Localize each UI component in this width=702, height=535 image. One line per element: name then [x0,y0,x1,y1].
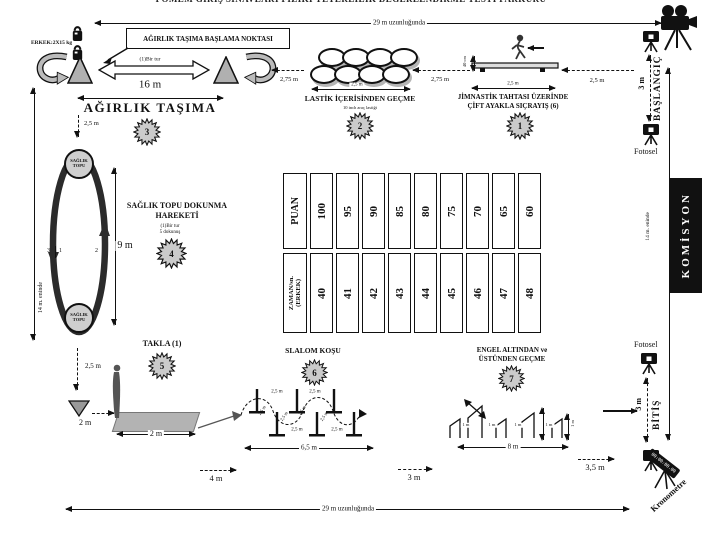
score-value: 100 [316,203,328,220]
cone-down-icon [68,400,90,418]
medicine-ball-note-1: (1)Bir tur [160,224,179,229]
finish-label: BİTİŞ [653,390,663,440]
weight-carry-arrow [78,98,223,99]
one-lap-label: (1)Bir tur [138,57,163,63]
slalom-gap-label: 2,5 m [307,390,322,395]
board-start-gap-label: 2,5 m [588,78,607,85]
score-value: 85 [394,206,406,217]
gap-4m-label: 4 m [210,474,223,483]
hurdles-icon [448,392,580,446]
station-5-number: 5 [148,352,176,380]
finish-zone-line [647,378,648,442]
medicine-ball-top: SAĞLIK TOPU [64,149,94,179]
course-diagram: POMEM GİRİŞ SINAVLARI FİZİKİ YETERLİLİK … [0,0,702,535]
tires-title: LASTİK İÇERİSİNDEN GEÇME [305,95,415,103]
score-value: 75 [446,206,458,217]
weights-label: ERKEK:2X15 kg [31,41,72,47]
start-point-box: AĞIRLIK TAŞIMA BAŞLAMA NOKTASI [126,28,290,49]
station-5-badge: 5 [148,352,176,380]
time-value: 47 [498,288,510,299]
photocell-icon [639,353,659,380]
commission-box: KOMİSYON [670,178,702,293]
time-header-2: (ERKEK) [295,279,302,307]
gap-35m-label: 3,5 m [585,463,604,472]
time-value: 44 [420,288,432,299]
score-header: PUAN [290,197,301,225]
offset-line-3 [78,115,79,137]
station-2-number: 2 [346,112,374,140]
time-cell: 44 [414,253,437,333]
course-width-left-label: 14 m. eninde [38,282,44,313]
time-header-1: ZAMAN/sn. [288,276,295,310]
time-row: ZAMAN/sn. (ERKEK) 40 41 42 43 44 45 46 4… [283,253,541,333]
time-cell: 40 [310,253,333,333]
top-length-label: 29 m uzunluğunda [371,20,427,27]
hurdle-gap-label: 1 m [487,423,498,428]
hurdle-gap-label: 1 m [461,423,472,428]
time-value: 46 [472,288,484,299]
slalom-total-label: 6,5 m [299,445,319,452]
lane-tick [55,246,56,258]
station-7-badge: 7 [498,365,525,392]
page-title: POMEM GİRİŞ SINAVLARI FİZİKİ YETERLİLİK … [156,0,547,4]
board-height-arrow [474,56,475,71]
course-width-right-label: 14 m. eninde [646,212,652,241]
tire-width-label: 2,5 m [349,83,364,88]
score-value: 95 [342,206,354,217]
tire-gap-right-arrow [413,70,470,71]
board-height-label: 40 cm [463,56,468,67]
score-cell: 75 [440,173,463,249]
oval-length-label: 9 m [115,241,134,251]
start-zone-line [650,55,651,121]
gap-3m-label: 3 m [408,473,421,482]
time-cell: 47 [492,253,515,333]
ball-label: SAĞLIK TOPU [67,313,91,323]
score-header-cell: PUAN [283,173,307,249]
tire-gap-left-label: 2,75 m [278,77,300,84]
hurdles-total-label: 8 m [506,444,521,451]
slalom-gap-label: 2,5 m [269,390,284,395]
medicine-ball-title-2: HAREKETİ [155,212,198,220]
score-value: 70 [472,206,484,217]
slalom-gap-label: 2,5 m [289,428,304,433]
tire-width-arrow [312,89,410,90]
time-cell: 46 [466,253,489,333]
photocell-label-top: Fotosel [634,148,658,156]
hurdles-title-2: ÜSTÜNDEN GEÇME [479,356,546,363]
score-cell: 80 [414,173,437,249]
time-header-cell: ZAMAN/sn. (ERKEK) [283,253,307,333]
score-value: 65 [498,206,510,217]
cone-left-icon [67,56,93,84]
start-label: BAŞLANGIÇ [654,53,664,123]
time-cell: 45 [440,253,463,333]
score-cell: 85 [388,173,411,249]
commission-label: KOMİSYON [680,192,692,278]
board-width-arrow [472,88,555,89]
video-camera-icon [655,4,701,59]
time-cell: 43 [388,253,411,333]
lane-mark-3: 3 [47,248,50,254]
station-6-number: 6 [301,359,328,386]
medicine-ball-title-1: SAĞLIK TOPU DOKUNMA [127,202,227,210]
finish-approach-arrow [603,410,637,412]
tire-gap-left-arrow [272,70,304,71]
gap-3m-arrow [398,469,432,470]
hurdle-height-arrow [568,414,569,440]
station-3-badge: 3 [133,118,161,146]
slalom-title: SLALOM KOŞU [285,347,341,355]
station-3-number: 3 [133,118,161,146]
score-cell: 65 [492,173,515,249]
time-value: 40 [316,288,328,299]
station-4-number: 4 [156,238,187,269]
score-cell: 95 [336,173,359,249]
course-width-left-line [34,88,35,340]
uturn-arrow-left-icon [36,50,70,86]
gym-board-title-2: ÇİFT AYAKLA SIÇRAYIŞ (6) [467,103,558,110]
ball-label: SAĞLIK TOPU [67,159,91,169]
time-cell: 42 [362,253,385,333]
score-cell: 100 [310,173,333,249]
time-value: 42 [368,288,380,299]
station-4-badge: 4 [156,238,187,269]
lane-mark-1: 1 [59,248,62,254]
photocell-label-bottom: Fotosel [634,341,658,349]
station-1-number: 1 [506,112,534,140]
score-cell: 60 [518,173,541,249]
score-value: 60 [524,206,536,217]
offset-label-3: 2,5 m [84,121,99,128]
time-value: 43 [394,288,406,299]
medicine-ball-note-2: 5 dokunuş [160,230,181,235]
time-cell: 48 [518,253,541,333]
track-length-label: 16 m [137,80,163,91]
time-value: 45 [446,288,458,299]
lane-mark-2: 2 [95,248,98,254]
hurdle-gap-label: 1 m [544,423,555,428]
station-1-badge: 1 [506,112,534,140]
score-cell: 90 [362,173,385,249]
gap-4m-arrow [200,470,236,471]
cone-right-icon [213,56,239,84]
slalom-gap-label: 2,5 m [329,428,344,433]
start-zone-label: 3 m [638,77,646,90]
somersault-offset-line [77,348,78,390]
standing-person-icon [108,364,126,420]
mat-width-label: 2 m [148,430,164,438]
start-point-label: AĞIRLIK TAŞIMA BAŞLAMA NOKTASI [143,35,273,43]
board-start-gap-arrow [562,70,634,71]
time-value: 48 [524,288,536,299]
bottom-length-label: 29 m uzunluğunda [320,506,376,513]
somersault-offset-label: 2,5 m [85,363,101,370]
gap-35m-arrow [578,459,614,460]
medicine-ball-bottom: SAĞLIK TOPU [64,303,94,333]
board-width-label: 2,5 m [505,82,520,87]
somersault-title: TAKLA (1) [143,340,182,348]
tire-gap-right-label: 2,75 m [429,77,451,84]
hurdle-gap-label: 1 m [513,423,524,428]
time-cell: 41 [336,253,359,333]
score-value: 80 [420,206,432,217]
station-2-badge: 2 [346,112,374,140]
approach-arrow [528,47,544,49]
score-cell: 70 [466,173,489,249]
station-6-badge: 6 [301,359,328,386]
time-value: 41 [342,288,354,299]
score-value: 90 [368,206,380,217]
cone-gap-label: 2 m [79,419,91,427]
weight-carry-title: AĞIRLIK TAŞIMA [84,101,217,115]
tire-icon [382,65,410,84]
mat-to-slalom-arrow [196,408,244,432]
score-row: PUAN 100 95 90 85 80 75 70 65 60 [283,173,541,249]
station-7-number: 7 [498,365,525,392]
hurdle-height-arrow [543,408,544,440]
hurdles-title-1: ENGEL ALTINDAN ve [477,347,548,354]
gym-board-title-1: JİMNASTİK TAHTASI ÜZERİNDE [458,94,568,101]
hurdle-height-label: 1 m [571,420,576,427]
tires-note: 10 inch araç lastiği [343,106,377,111]
